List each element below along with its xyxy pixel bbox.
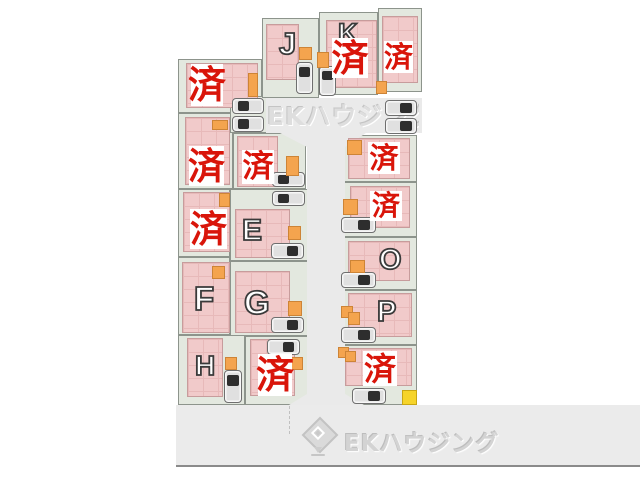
sold-stamp-b: 済: [189, 146, 224, 186]
sold-stamp-q: 済: [363, 351, 397, 386]
sold-stamp-c: 済: [190, 209, 227, 249]
car-icon: [341, 327, 376, 343]
car-icon: [352, 388, 386, 404]
lot-letter-f: F: [194, 282, 214, 315]
orange-marker-icon: [345, 351, 356, 362]
orange-marker-icon: [347, 140, 362, 155]
ek-diamond-logo-icon: [300, 417, 338, 457]
orange-marker-icon: [317, 52, 329, 68]
car-icon: [385, 100, 417, 116]
car-icon: [272, 191, 305, 206]
car-icon: [385, 118, 417, 134]
footer-logo-text: EKハウジング: [344, 424, 500, 458]
orange-marker-icon: [288, 301, 302, 316]
orange-marker-icon: [343, 199, 358, 215]
car-icon: [232, 98, 264, 114]
car-icon: [271, 317, 304, 333]
yellow-marker-icon: [402, 390, 417, 405]
orange-marker-icon: [350, 260, 365, 273]
sold-stamp-m: 済: [368, 142, 400, 174]
car-icon: [341, 272, 376, 288]
lot-letter-e: E: [242, 216, 262, 246]
orange-marker-icon: [286, 156, 299, 176]
car-icon: [224, 370, 242, 403]
orange-marker-icon: [248, 73, 258, 97]
orange-marker-icon: [299, 47, 312, 60]
lot-letter-j: J: [279, 28, 296, 59]
orange-marker-icon: [212, 266, 225, 279]
dimension-line: [289, 406, 290, 434]
site-plan: J K E F G H O P 済 済 済 済 済 済 済 済 済 済: [0, 0, 640, 480]
orange-marker-icon: [219, 193, 230, 207]
sold-stamp-l: 済: [384, 41, 413, 73]
lot-letter-h: H: [195, 352, 215, 380]
orange-marker-icon: [376, 81, 387, 94]
orange-marker-icon: [225, 357, 237, 370]
lot-letter-o: O: [379, 246, 402, 275]
car-icon: [232, 116, 264, 132]
orange-marker-icon: [348, 312, 360, 325]
sold-stamp-k: 済: [332, 38, 368, 78]
lot-letter-p: P: [377, 298, 396, 327]
orange-marker-icon: [212, 120, 228, 130]
sold-stamp-i: 済: [258, 354, 292, 396]
car-icon: [271, 243, 304, 259]
sold-stamp-n: 済: [370, 191, 402, 221]
lot-letter-g: G: [244, 286, 270, 319]
orange-marker-icon: [288, 226, 301, 240]
sold-stamp-a: 済: [191, 64, 223, 106]
car-icon: [296, 62, 313, 94]
sold-stamp-d: 済: [242, 150, 274, 184]
